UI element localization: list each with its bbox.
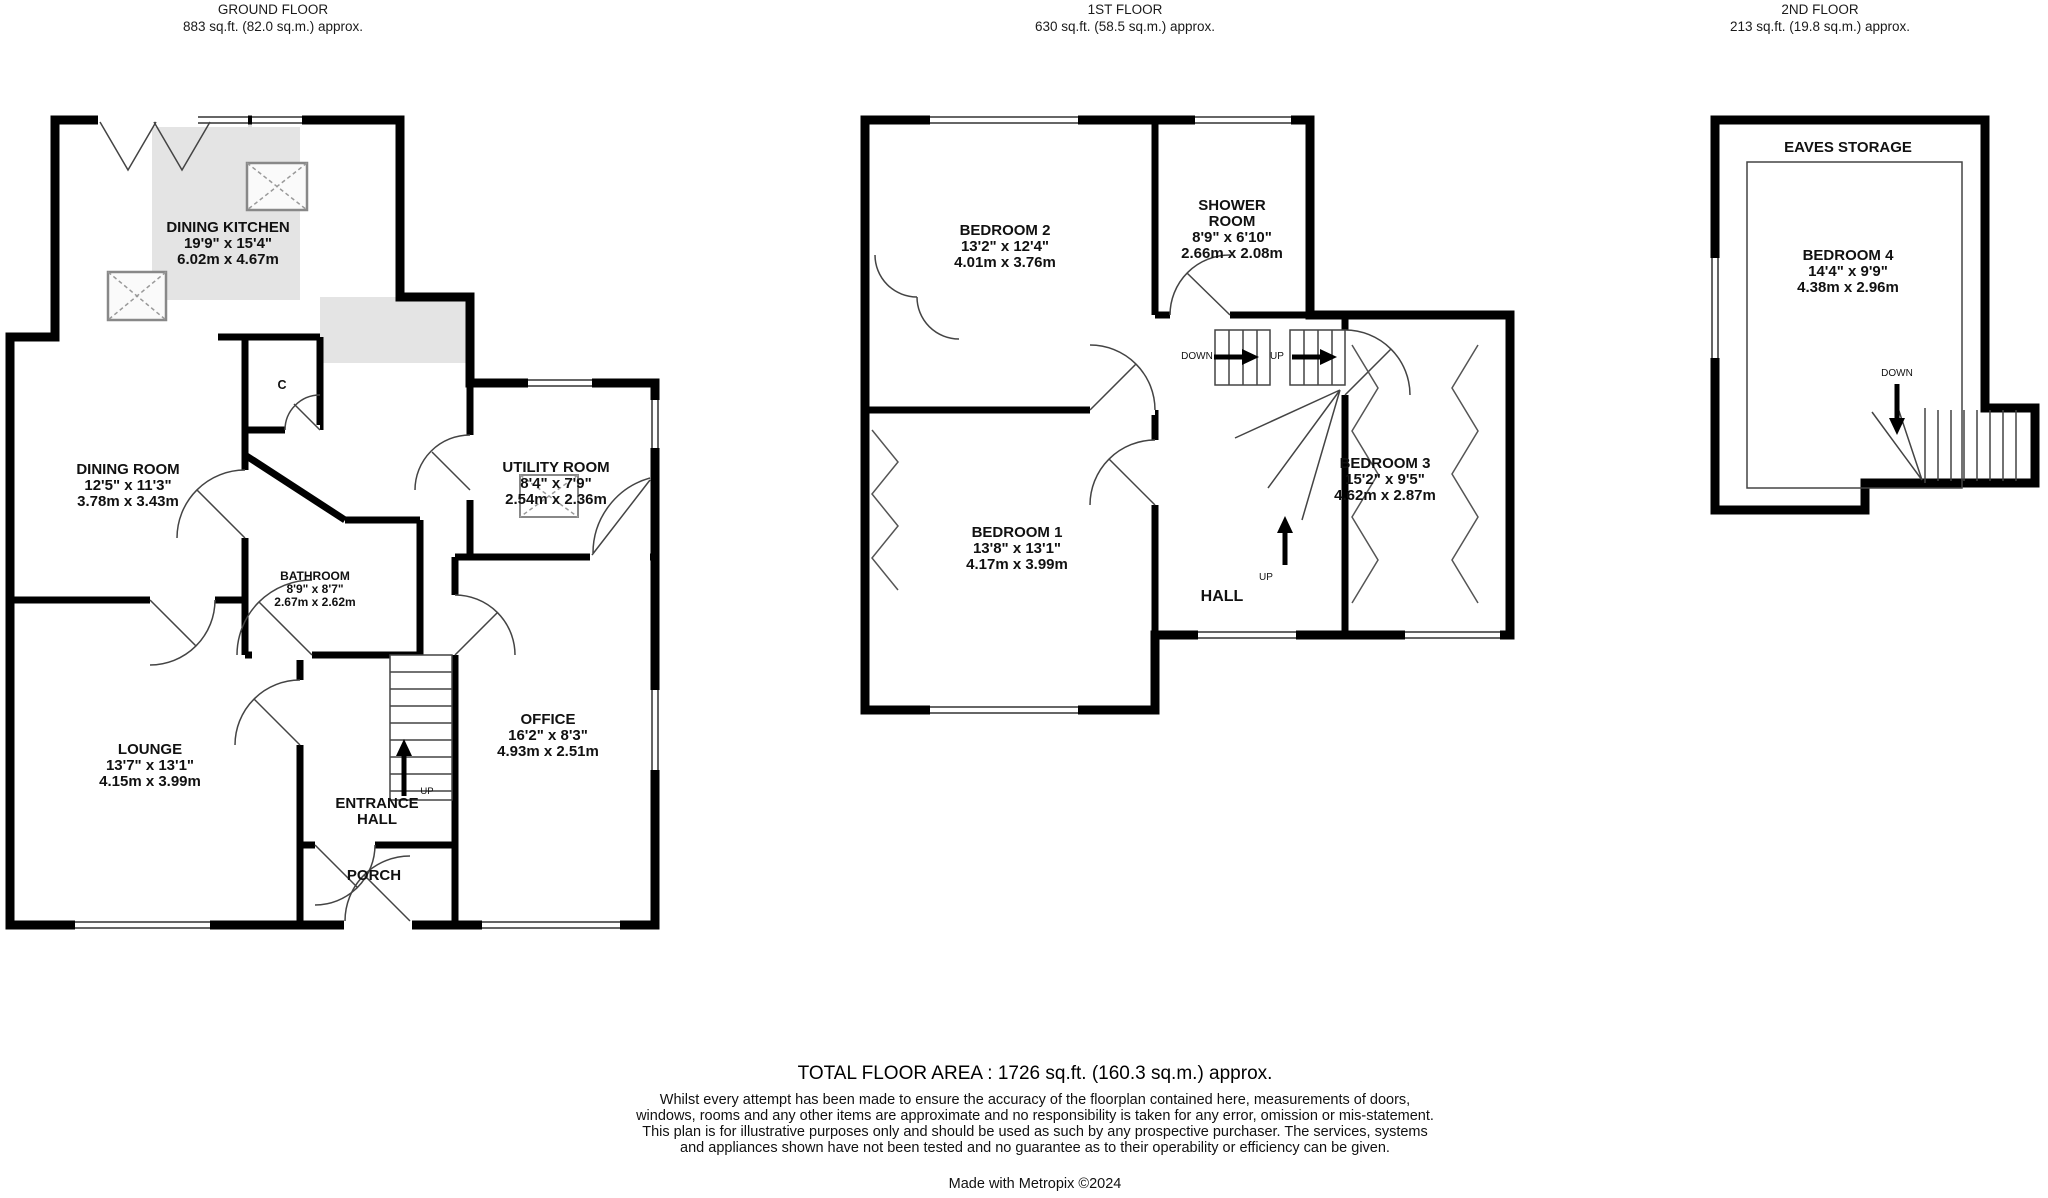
floor-header-second: 2ND FLOOR 213 sq.ft. (19.8 sq.m.) approx…: [1730, 2, 1910, 36]
eaves-line: [1747, 162, 1962, 488]
room-imperial: 13'8" x 13'1": [966, 541, 1068, 557]
floor-title: 2ND FLOOR: [1730, 2, 1910, 19]
room-imperial: 14'4" x 9'9": [1797, 264, 1899, 280]
room-name: BEDROOM 4: [1797, 248, 1899, 264]
stairs-up-label-first: UP: [1270, 351, 1284, 362]
room-imperial: 13'2" x 12'4": [954, 239, 1056, 255]
room-imperial: 12'5" x 11'3": [76, 478, 179, 494]
second-floor-down-arrow: [1889, 384, 1905, 435]
room-imperial: 19'9" x 15'4": [166, 236, 289, 252]
room-name: BEDROOM 3: [1334, 456, 1436, 472]
second-floor-outer-walls: [1715, 120, 2035, 510]
room-name: BEDROOM 2: [954, 223, 1056, 239]
room-label-hall: HALL: [1201, 588, 1244, 606]
room-imperial: 16'2" x 8'3": [497, 728, 599, 744]
floor-area: 883 sq.ft. (82.0 sq.m.) approx.: [183, 19, 363, 36]
floor-header-ground: GROUND FLOOR 883 sq.ft. (82.0 sq.m.) app…: [183, 2, 363, 36]
shading-passage: [320, 297, 470, 363]
room-label-dining-room: DINING ROOM 12'5" x 11'3" 3.78m x 3.43m: [76, 462, 179, 510]
room-metric: 4.15m x 3.99m: [99, 774, 201, 790]
room-label-bathroom: BATHROOM 8'9" x 8'7" 2.67m x 2.62m: [274, 570, 355, 609]
room-name: UTILITY ROOM: [502, 460, 609, 476]
room-metric: 2.54m x 2.36m: [502, 492, 609, 508]
room-imperial: 8'4" x 7'9": [502, 476, 609, 492]
room-metric: 4.93m x 2.51m: [497, 744, 599, 760]
room-metric: 4.17m x 3.99m: [966, 557, 1068, 573]
room-label-porch: PORCH: [347, 868, 401, 884]
stairs-down-label-second: DOWN: [1881, 368, 1913, 379]
room-metric: 4.01m x 3.76m: [954, 255, 1056, 271]
room-label-shower-room: SHOWER ROOM 8'9" x 6'10" 2.66m x 2.08m: [1181, 198, 1283, 262]
room-label-lounge: LOUNGE 13'7" x 13'1" 4.15m x 3.99m: [99, 742, 201, 790]
room-metric: 4.38m x 2.96m: [1797, 280, 1899, 296]
room-name: SHOWER ROOM: [1181, 198, 1283, 230]
floor-header-first: 1ST FLOOR 630 sq.ft. (58.5 sq.m.) approx…: [1035, 2, 1215, 36]
room-imperial: 13'7" x 13'1": [99, 758, 201, 774]
room-metric: 6.02m x 4.67m: [166, 252, 289, 268]
room-label-office: OFFICE 16'2" x 8'3" 4.93m x 2.51m: [497, 712, 599, 760]
room-label-bedroom-3: BEDROOM 3 15'2" x 9'5" 4.62m x 2.87m: [1334, 456, 1436, 504]
floor-area: 213 sq.ft. (19.8 sq.m.) approx.: [1730, 19, 1910, 36]
room-name: BEDROOM 1: [966, 525, 1068, 541]
floorplan-page: GROUND FLOOR 883 sq.ft. (82.0 sq.m.) app…: [0, 0, 2048, 1198]
second-floor-openings: [1709, 258, 1721, 358]
total-floor-area: TOTAL FLOOR AREA : 1726 sq.ft. (160.3 sq…: [798, 1063, 1273, 1085]
room-label-utility-room: UTILITY ROOM 8'4" x 7'9" 2.54m x 2.36m: [502, 460, 609, 508]
stairs-up-label-first-lower: UP: [1259, 572, 1273, 583]
ground-floor-stairs: [390, 655, 452, 800]
room-label-eaves-storage: EAVES STORAGE: [1784, 140, 1912, 156]
ground-floor-outer-walls: [10, 120, 655, 925]
room-metric: 4.62m x 2.87m: [1334, 488, 1436, 504]
room-name: OFFICE: [497, 712, 599, 728]
room-name: LOUNGE: [99, 742, 201, 758]
room-name: DINING ROOM: [76, 462, 179, 478]
room-metric: 2.66m x 2.08m: [1181, 246, 1283, 262]
cupboard-label: C: [277, 378, 286, 392]
room-metric: 2.67m x 2.62m: [274, 596, 355, 609]
room-name: EAVES STORAGE: [1784, 140, 1912, 156]
room-name: ENTRANCE HALL: [335, 796, 418, 828]
floor-area: 630 sq.ft. (58.5 sq.m.) approx.: [1035, 19, 1215, 36]
stairs-up-label-ground: UP: [420, 786, 433, 797]
room-name: PORCH: [347, 868, 401, 884]
room-label-bedroom-4: BEDROOM 4 14'4" x 9'9" 4.38m x 2.96m: [1797, 248, 1899, 296]
room-label-entrance-hall: ENTRANCE HALL: [335, 796, 418, 828]
room-label-dining-kitchen: DINING KITCHEN 19'9" x 15'4" 6.02m x 4.6…: [166, 220, 289, 268]
credit-text: Made with Metropix ©2024: [949, 1176, 1122, 1192]
floor-title: 1ST FLOOR: [1035, 2, 1215, 19]
room-imperial: 15'2" x 9'5": [1334, 472, 1436, 488]
room-name: DINING KITCHEN: [166, 220, 289, 236]
shading-kitchen: [152, 124, 300, 300]
room-metric: 3.78m x 3.43m: [76, 494, 179, 510]
room-label-bedroom-1: BEDROOM 1 13'8" x 13'1" 4.17m x 3.99m: [966, 525, 1068, 573]
room-imperial: 8'9" x 6'10": [1181, 230, 1283, 246]
floor-title: GROUND FLOOR: [183, 2, 363, 19]
disclaimer-text: Whilst every attempt has been made to en…: [635, 1092, 1435, 1156]
stairs-down-label-first: DOWN: [1181, 351, 1213, 362]
ground-floor-inner-walls: [10, 337, 655, 925]
room-label-bedroom-2: BEDROOM 2 13'2" x 12'4" 4.01m x 3.76m: [954, 223, 1056, 271]
